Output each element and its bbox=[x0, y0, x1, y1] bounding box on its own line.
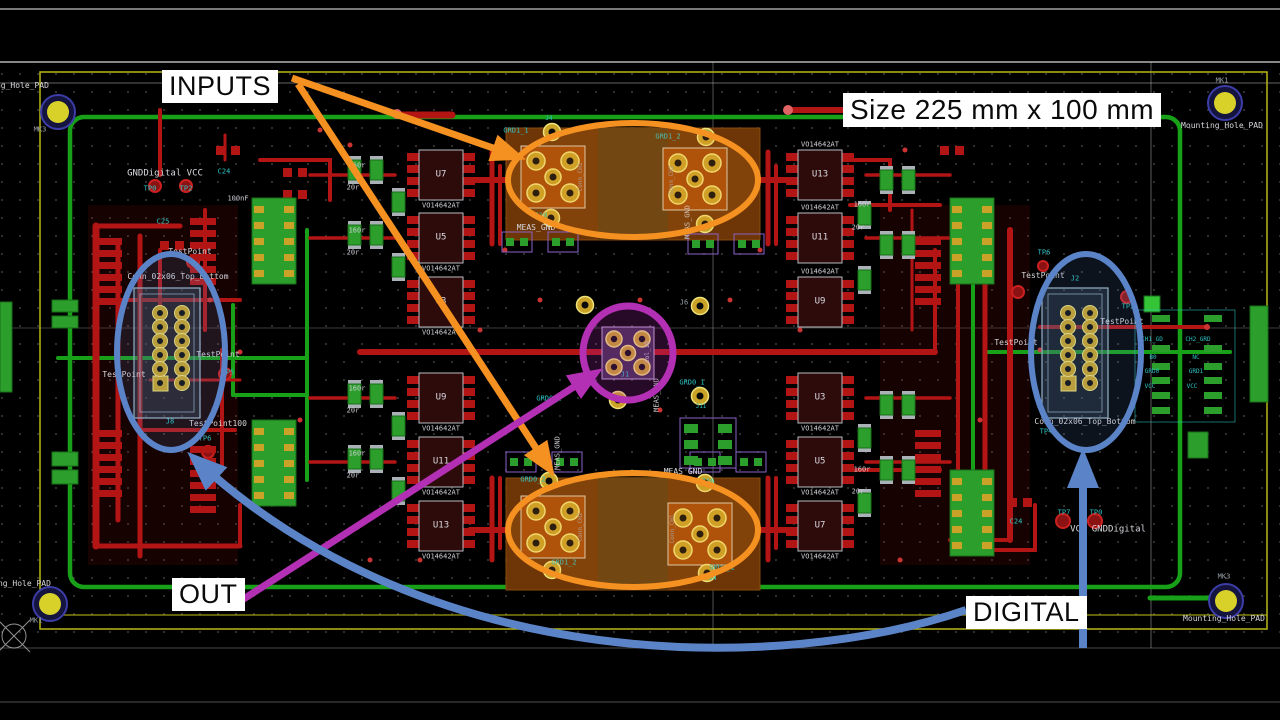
digital-highlight-ellipse-left bbox=[117, 254, 225, 450]
inputs-highlight-ellipse-bottom bbox=[508, 473, 758, 587]
digital-label: DIGITAL bbox=[966, 596, 1087, 629]
pcb-screenshot: Mounting_Hole_PADMK3Mounting_Hole_PADMK1… bbox=[0, 0, 1280, 720]
inputs-arrow-top bbox=[292, 78, 516, 156]
inputs-arrow-bottom bbox=[298, 84, 549, 468]
inputs-label: INPUTS bbox=[162, 70, 278, 103]
inputs-highlight-ellipse-top bbox=[508, 123, 758, 237]
digital-highlight-ellipse-right bbox=[1031, 254, 1141, 450]
out-highlight-ellipse bbox=[583, 306, 673, 400]
out-label: OUT bbox=[172, 578, 245, 611]
size-label: Size 225 mm x 100 mm bbox=[843, 93, 1161, 127]
